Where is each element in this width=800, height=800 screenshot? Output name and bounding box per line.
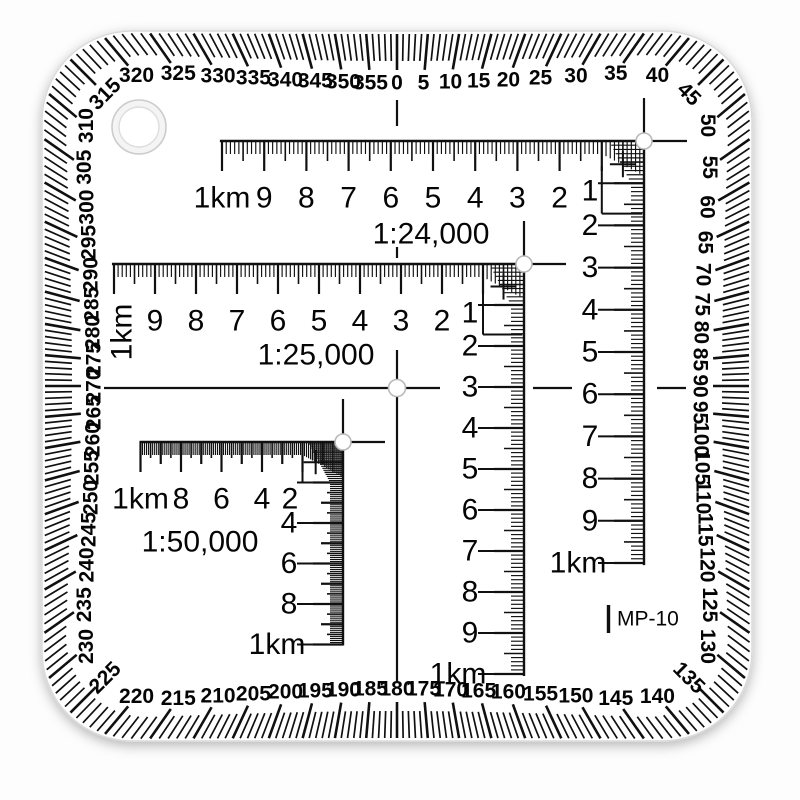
km-label: 2 bbox=[582, 209, 599, 242]
km-label: 1km bbox=[249, 628, 306, 661]
km-label: 6 bbox=[382, 182, 399, 215]
degree-label-200: 200 bbox=[268, 681, 303, 704]
degree-label-290: 290 bbox=[79, 257, 102, 292]
degree-label-10: 10 bbox=[439, 71, 462, 94]
degree-label-335: 335 bbox=[236, 67, 271, 90]
km-label: 5 bbox=[582, 336, 599, 369]
km-label: 8 bbox=[462, 576, 479, 609]
degree-label-235: 235 bbox=[73, 587, 96, 622]
km-label: 1km bbox=[112, 483, 169, 516]
km-label: 6 bbox=[582, 378, 599, 411]
degree-tick-minor bbox=[385, 34, 386, 61]
pivot-hole bbox=[516, 256, 532, 272]
km-label: 8 bbox=[173, 483, 190, 516]
degree-label-60: 60 bbox=[695, 195, 718, 218]
model-label: MP-10 bbox=[617, 608, 679, 631]
km-label: 8 bbox=[582, 462, 599, 495]
degree-label-0: 0 bbox=[391, 72, 403, 95]
degree-label-15: 15 bbox=[467, 70, 491, 93]
degree-label-30: 30 bbox=[564, 65, 587, 88]
degree-label-130: 130 bbox=[696, 629, 719, 664]
degree-label-240: 240 bbox=[76, 547, 99, 582]
degree-label-65: 65 bbox=[693, 231, 716, 255]
km-label: 1 bbox=[582, 175, 599, 208]
scale-ratio-label: 1:24,000 bbox=[373, 218, 490, 251]
degree-label-50: 50 bbox=[696, 114, 719, 137]
degree-label-320: 320 bbox=[119, 64, 154, 87]
km-label: 2 bbox=[434, 305, 451, 338]
degree-label-330: 330 bbox=[201, 65, 236, 88]
pivot-hole bbox=[636, 133, 652, 149]
km-label: 6 bbox=[462, 494, 479, 527]
degree-label-210: 210 bbox=[201, 684, 236, 707]
km-label: 4 bbox=[281, 507, 298, 540]
degree-label-95: 95 bbox=[689, 401, 712, 425]
degree-label-125: 125 bbox=[698, 587, 721, 622]
degree-tick-minor bbox=[45, 397, 72, 398]
degree-label-195: 195 bbox=[298, 679, 333, 702]
degree-label-80: 80 bbox=[689, 321, 712, 344]
degree-tick-minor bbox=[45, 374, 72, 375]
km-label: 4 bbox=[467, 182, 484, 215]
km-label: 9 bbox=[462, 617, 479, 650]
degree-label-295: 295 bbox=[78, 225, 101, 260]
degree-label-110: 110 bbox=[692, 480, 715, 514]
km-label: 1km bbox=[430, 658, 487, 691]
degree-tick-minor bbox=[722, 397, 749, 398]
degree-label-5: 5 bbox=[418, 71, 430, 94]
degree-label-220: 220 bbox=[119, 685, 154, 708]
km-label: 5 bbox=[425, 182, 442, 215]
km-label: 1 bbox=[462, 297, 479, 330]
degree-label-90: 90 bbox=[689, 374, 712, 397]
km-label: 1km bbox=[194, 182, 251, 215]
protractor-stage: 0510152025303540455055606570758085909510… bbox=[0, 0, 800, 800]
degree-tick-minor bbox=[408, 711, 409, 738]
degree-label-25: 25 bbox=[529, 67, 553, 90]
km-label: 9 bbox=[147, 305, 164, 338]
km-label: 5 bbox=[311, 305, 328, 338]
degree-label-120: 120 bbox=[695, 547, 718, 582]
degree-label-310: 310 bbox=[75, 108, 98, 143]
degree-label-300: 300 bbox=[76, 190, 99, 225]
hanging-hole-inner bbox=[119, 107, 159, 147]
km-label: 7 bbox=[229, 305, 246, 338]
degree-label-245: 245 bbox=[78, 512, 101, 547]
model-marking: MP-10 bbox=[609, 605, 679, 633]
km-label: 9 bbox=[256, 182, 273, 215]
km-label: 7 bbox=[340, 182, 357, 215]
km-label: 4 bbox=[582, 293, 599, 326]
km-label: 1km bbox=[106, 304, 139, 361]
degree-label-155: 155 bbox=[523, 682, 558, 705]
degree-label-325: 325 bbox=[161, 62, 196, 85]
degree-label-75: 75 bbox=[690, 293, 713, 317]
km-label: 6 bbox=[270, 305, 287, 338]
degree-label-230: 230 bbox=[75, 629, 98, 664]
degree-label-215: 215 bbox=[161, 687, 196, 710]
km-label: 8 bbox=[281, 588, 298, 621]
degree-label-150: 150 bbox=[558, 684, 593, 707]
km-label: 7 bbox=[462, 535, 479, 568]
degree-tick-minor bbox=[408, 34, 409, 61]
degree-label-70: 70 bbox=[692, 263, 715, 286]
scale-ratio-label: 1:50,000 bbox=[142, 526, 259, 559]
degree-label-55: 55 bbox=[698, 156, 721, 180]
scale-ratio-label: 1:25,000 bbox=[258, 339, 375, 372]
hanging-hole bbox=[112, 100, 166, 154]
center-hole bbox=[389, 380, 406, 397]
degree-label-40: 40 bbox=[646, 64, 669, 87]
km-label: 7 bbox=[582, 420, 599, 453]
degree-label-205: 205 bbox=[236, 682, 271, 705]
degree-label-145: 145 bbox=[598, 687, 633, 710]
km-label: 6 bbox=[213, 483, 230, 516]
degree-tick-minor bbox=[722, 374, 749, 375]
mp10-protractor: 0510152025303540455055606570758085909510… bbox=[0, 0, 800, 800]
pivot-hole bbox=[335, 434, 351, 450]
km-label: 4 bbox=[254, 483, 271, 516]
km-label: 9 bbox=[582, 504, 599, 537]
km-label: 3 bbox=[462, 371, 479, 404]
degree-label-355: 355 bbox=[353, 71, 388, 94]
km-label: 8 bbox=[188, 305, 205, 338]
degree-label-140: 140 bbox=[640, 685, 675, 708]
km-label: 6 bbox=[281, 547, 298, 580]
km-label: 3 bbox=[582, 251, 599, 284]
km-label: 4 bbox=[462, 412, 479, 445]
degree-label-35: 35 bbox=[604, 62, 628, 85]
km-label: 2 bbox=[551, 182, 568, 215]
degree-label-85: 85 bbox=[689, 348, 712, 372]
km-label: 2 bbox=[462, 330, 479, 363]
degree-label-305: 305 bbox=[73, 149, 96, 184]
degree-tick-minor bbox=[385, 711, 386, 738]
km-label: 3 bbox=[393, 305, 410, 338]
degree-label-115: 115 bbox=[693, 513, 716, 547]
km-label: 8 bbox=[298, 182, 315, 215]
km-label: 1km bbox=[550, 547, 607, 580]
km-label: 3 bbox=[509, 182, 526, 215]
km-label: 5 bbox=[462, 453, 479, 486]
degree-label-20: 20 bbox=[497, 68, 520, 91]
km-label: 4 bbox=[352, 305, 369, 338]
